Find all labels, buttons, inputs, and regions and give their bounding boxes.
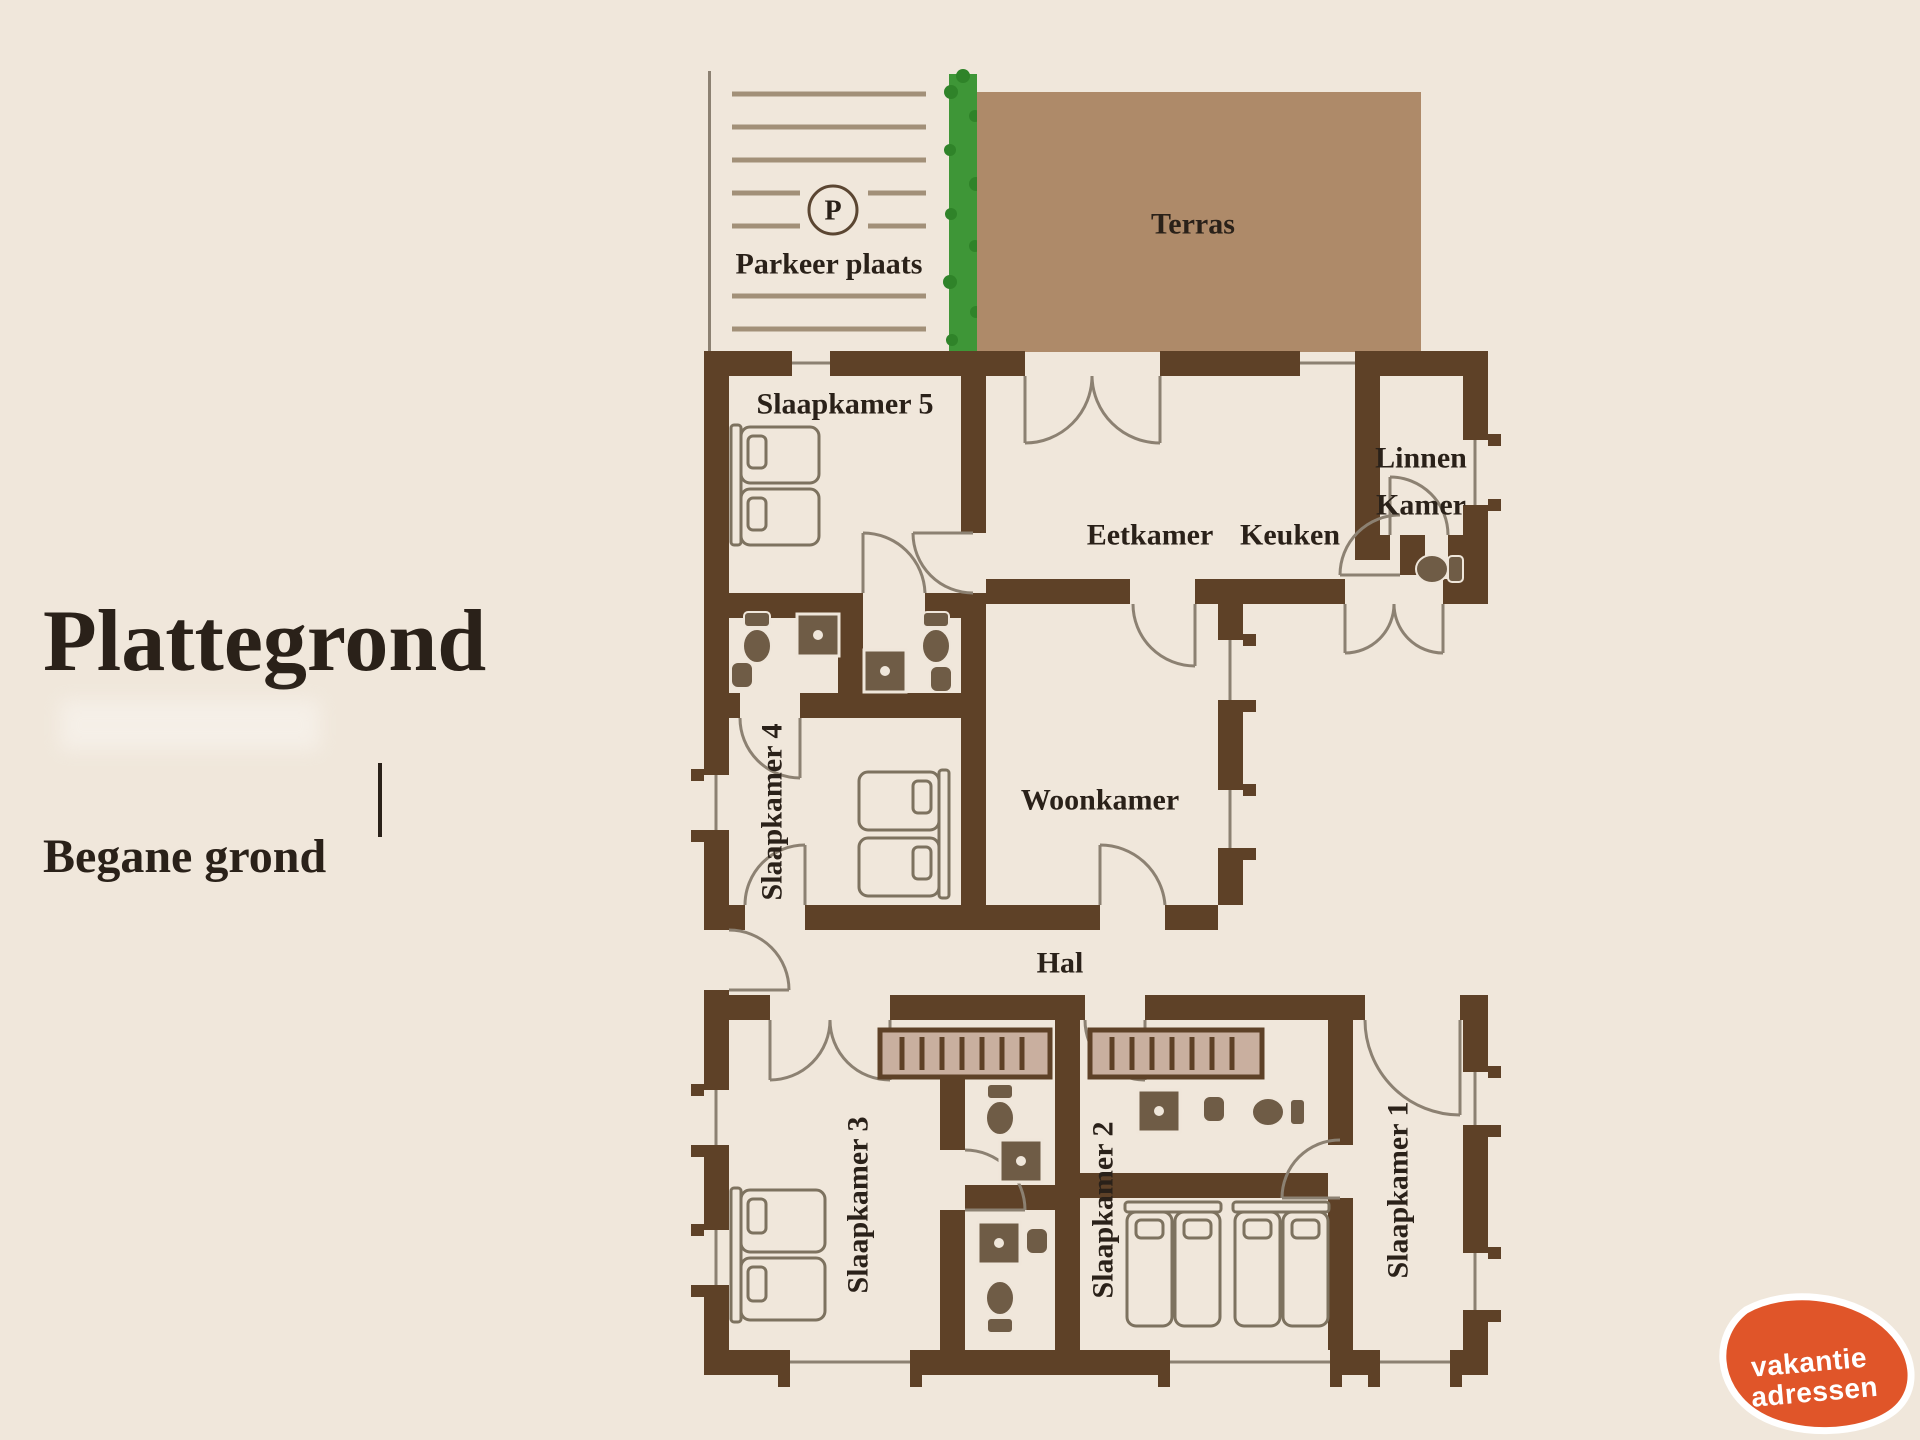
floorplan-page: P Parkeer plaats Terras (0, 0, 1920, 1440)
door-woonkamer-hal (1100, 845, 1165, 905)
terrace-label: Terras (1151, 208, 1235, 241)
door-slaapkamer5 (913, 533, 973, 593)
terrace-door-left (1025, 376, 1092, 443)
terrace: Terras (977, 92, 1421, 352)
shower-sk2 (1138, 1090, 1180, 1132)
exterior-door-keuken-right (1394, 604, 1443, 653)
door-slaapkamer1 (1365, 1020, 1460, 1115)
sink-bath-a (731, 662, 753, 688)
bed-slaapkamer2-left (1125, 1202, 1221, 1326)
bed-slaapkamer5 (731, 425, 819, 545)
exterior-door-keuken-left (1345, 604, 1394, 653)
title-block: Plattegrond Begane grond (43, 593, 486, 883)
toilet-corridor-top (986, 1084, 1014, 1135)
toilet-corridor-bottom (986, 1281, 1014, 1333)
bed-slaapkamer4 (859, 770, 949, 898)
wardrobe-sk3 (880, 1030, 1050, 1077)
parking-area: P Parkeer plaats (708, 71, 926, 352)
page-title: Plattegrond (43, 593, 486, 690)
shower-corridor-bottom (978, 1222, 1020, 1264)
text-cursor[interactable] (378, 763, 382, 837)
label-hal: Hal (1037, 947, 1084, 980)
logo[interactable]: vakantie adressen (1723, 1297, 1911, 1431)
erased-text-smudge (60, 700, 320, 750)
bed-slaapkamer2-right (1233, 1202, 1329, 1326)
label-keuken: Keuken (1240, 519, 1340, 552)
label-linnen-line1: Linnen (1375, 442, 1467, 475)
sink-bath-b (930, 666, 952, 692)
page-subtitle: Begane grond (43, 830, 326, 883)
entrance-door-hal (729, 930, 789, 990)
label-slaapkamer3: Slaapkamer 3 (842, 1117, 875, 1294)
shower-bath-b (864, 650, 906, 692)
label-slaapkamer1: Slaapkamer 1 (1382, 1102, 1415, 1279)
label-slaapkamer4: Slaapkamer 4 (756, 724, 789, 901)
parking-border-line (708, 71, 711, 352)
label-eetkamer: Eetkamer (1087, 519, 1214, 552)
label-linnen-line2: Kamer (1376, 489, 1466, 522)
sink-corridor (1026, 1228, 1048, 1254)
parking-symbol-label: P (824, 196, 841, 227)
toilet-bath-a (743, 612, 771, 663)
door-bathroom-b (863, 533, 925, 593)
toilet-keuken-wc (1416, 555, 1463, 583)
door-woonkamer-top (1133, 604, 1195, 666)
toilet-sk2 (1252, 1098, 1305, 1126)
toilet-bath-b (922, 612, 950, 663)
bed-slaapkamer3 (731, 1188, 825, 1322)
terrace-door-right (1092, 376, 1160, 443)
door-slaapkamer3-left (770, 1020, 830, 1080)
label-slaapkamer2: Slaapkamer 2 (1087, 1122, 1120, 1299)
shower-corridor-top (1000, 1140, 1042, 1182)
shower-bath-a (797, 614, 839, 656)
label-woonkamer: Woonkamer (1021, 784, 1179, 817)
wardrobe-sk2 (1090, 1030, 1262, 1077)
label-slaapkamer5: Slaapkamer 5 (757, 388, 934, 421)
parking-label: Parkeer plaats (736, 248, 923, 281)
sink-sk2 (1203, 1096, 1225, 1122)
floorplan-canvas: P Parkeer plaats Terras (0, 0, 1920, 1440)
